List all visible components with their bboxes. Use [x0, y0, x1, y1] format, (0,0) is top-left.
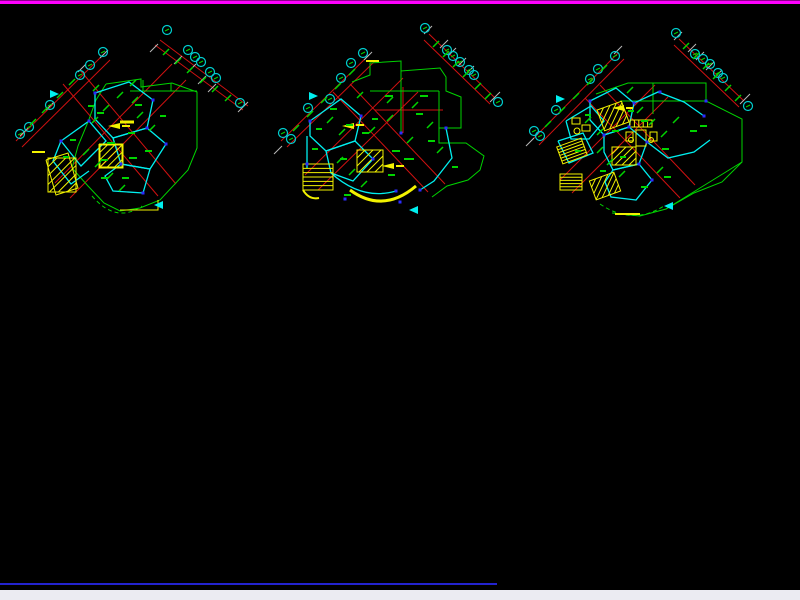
- leader-line: [150, 44, 158, 52]
- node-dot: [120, 163, 123, 166]
- dimension-tick: [361, 181, 367, 187]
- text-mark: [416, 113, 423, 115]
- node-dot: [603, 134, 606, 137]
- furniture-circle: [574, 128, 580, 134]
- node-dot: [309, 120, 312, 123]
- grid-bubble-glyph: [472, 74, 476, 76]
- text-mark: [340, 158, 347, 160]
- dimension-tick: [349, 69, 355, 75]
- grid-bubble-glyph: [423, 27, 427, 29]
- hatch-line: [375, 164, 383, 172]
- dimension-tick: [387, 97, 393, 103]
- text-mark: [129, 157, 137, 159]
- hatch-line: [611, 109, 629, 127]
- grid-bubble-glyph: [746, 105, 750, 107]
- node-dot: [705, 100, 708, 103]
- node-dot: [589, 100, 592, 103]
- node-dot: [399, 201, 402, 204]
- dimension-tick: [103, 105, 109, 111]
- text-mark: [620, 156, 626, 158]
- furniture-rect: [582, 125, 590, 131]
- wall-line: [647, 140, 710, 158]
- text-mark: [641, 186, 648, 188]
- node-dot: [152, 99, 155, 102]
- axis-dimension-line: [679, 39, 744, 101]
- hatch-line: [612, 147, 619, 154]
- balcony-arc: [303, 190, 319, 198]
- dimension-tick: [545, 121, 551, 127]
- grid-bubble-glyph: [289, 138, 293, 140]
- section-arrow-icon: [409, 206, 418, 214]
- dimension-tick: [627, 87, 633, 93]
- text-mark: [312, 148, 318, 150]
- dimension-tick: [619, 171, 625, 177]
- node-dot: [142, 192, 145, 195]
- text-mark: [135, 104, 142, 106]
- node-dot: [306, 163, 309, 166]
- text-mark-yellow: [122, 125, 130, 127]
- node-dot: [703, 115, 706, 118]
- axis-dimension-line: [572, 97, 668, 193]
- node-dot: [628, 126, 631, 129]
- hatch-block: [357, 150, 383, 172]
- node-dot: [646, 141, 649, 144]
- dimension-tick: [137, 112, 143, 118]
- text-mark: [404, 158, 414, 160]
- grid-bubble-glyph: [193, 56, 197, 58]
- grid-bubble-glyph: [165, 29, 169, 31]
- text-mark: [88, 105, 94, 107]
- hatch-line: [620, 115, 629, 124]
- grid-bubble-glyph: [721, 77, 725, 79]
- grid-bubble-glyph: [596, 68, 600, 70]
- dimension-tick: [327, 117, 333, 123]
- dimension-tick: [407, 137, 413, 143]
- hatch-block: [48, 158, 76, 192]
- leader-line: [274, 146, 282, 154]
- axis-dimension-line: [424, 40, 490, 104]
- grid-bubble-glyph: [306, 107, 310, 109]
- text-mark: [362, 132, 369, 134]
- dimension-tick: [637, 107, 643, 113]
- hatch-line: [100, 145, 115, 160]
- furniture-rect: [572, 118, 580, 124]
- text-mark-yellow: [356, 124, 364, 126]
- node-dot: [146, 127, 149, 130]
- dimension-tick: [117, 92, 123, 98]
- grid-bubble-glyph: [339, 77, 343, 79]
- section-arrow-icon: [309, 92, 318, 100]
- node-dot: [638, 163, 641, 166]
- text-mark: [145, 150, 152, 152]
- node-dot: [344, 198, 347, 201]
- node-dot: [88, 120, 91, 123]
- text-mark: [575, 150, 581, 152]
- grid-bubble-glyph: [361, 52, 365, 54]
- dimension-tick: [339, 129, 345, 135]
- node-dot: [633, 102, 636, 105]
- drawing-canvas[interactable]: [0, 0, 800, 600]
- grid-bubble-glyph: [701, 58, 705, 60]
- node-dot: [165, 143, 168, 146]
- direction-arrow-icon: [382, 163, 394, 169]
- text-mark: [690, 130, 697, 132]
- text-mark: [385, 95, 393, 97]
- text-mark: [641, 120, 648, 122]
- dimension-tick: [335, 83, 341, 89]
- node-dot: [400, 132, 403, 135]
- text-mark: [107, 142, 115, 144]
- dimension-tick: [119, 185, 125, 191]
- grid-bubble-glyph: [238, 102, 242, 104]
- floor-plan-2[interactable]: [274, 24, 503, 215]
- dimension-tick: [83, 149, 89, 155]
- hatch-outline: [589, 172, 620, 200]
- text-mark-yellow: [626, 107, 633, 109]
- text-mark: [662, 148, 669, 150]
- dimension-tick: [437, 147, 443, 153]
- hatch-line: [612, 147, 626, 161]
- text-mark: [452, 166, 458, 168]
- node-dot: [60, 140, 63, 143]
- grid-bubble-glyph: [349, 62, 353, 64]
- dimension-tick: [661, 131, 667, 137]
- axis-dimension-line: [70, 80, 186, 198]
- leader-line: [526, 138, 534, 146]
- hatch-block: [557, 138, 588, 164]
- bottom-blue-line: [0, 583, 497, 585]
- text-mark: [346, 124, 353, 126]
- cad-viewport: [0, 0, 800, 600]
- grid-bubble-glyph: [496, 101, 500, 103]
- hatch-block: [589, 172, 620, 200]
- floor-plan-3[interactable]: [526, 29, 753, 217]
- building-outline: [666, 162, 742, 209]
- text-mark: [700, 125, 707, 127]
- text-mark: [160, 115, 166, 117]
- text-mark: [612, 130, 619, 132]
- node-dot: [395, 190, 398, 193]
- hatch-line: [357, 150, 373, 166]
- dimension-tick: [149, 125, 155, 131]
- text-mark: [344, 194, 351, 196]
- dimension-tick: [349, 169, 355, 175]
- floor-plan-1[interactable]: [16, 26, 249, 214]
- grid-bubble-glyph: [328, 98, 332, 100]
- hatch-line: [629, 158, 636, 165]
- dimension-tick: [369, 127, 375, 133]
- text-mark: [628, 110, 634, 112]
- dimension-tick: [673, 117, 679, 123]
- building-outline: [352, 61, 484, 197]
- dimension-tick: [573, 93, 579, 99]
- node-dot: [651, 179, 654, 182]
- dimension-tick: [433, 41, 439, 47]
- building-outline: [72, 79, 197, 211]
- text-mark: [388, 174, 395, 176]
- grid-bubble-glyph: [199, 61, 203, 63]
- text-mark: [420, 95, 428, 97]
- grid-bubble-glyph: [214, 77, 218, 79]
- grid-bubble-glyph: [554, 109, 558, 111]
- text-mark: [372, 118, 378, 120]
- text-mark: [330, 108, 337, 110]
- hatch-block: [303, 164, 333, 190]
- status-bar: [0, 590, 800, 600]
- text-mark: [122, 177, 129, 179]
- axis-dimension-line: [160, 40, 248, 106]
- axis-dimension-line: [16, 54, 104, 141]
- grid-bubble-glyph: [186, 49, 190, 51]
- wall-line: [420, 128, 452, 190]
- node-dot: [94, 92, 97, 95]
- text-mark: [316, 128, 322, 130]
- dimension-tick: [485, 93, 491, 99]
- text-mark: [101, 159, 108, 161]
- dimension-tick: [657, 167, 663, 173]
- text-mark: [428, 140, 435, 142]
- grid-bubble-glyph: [281, 132, 285, 134]
- hatch-line: [589, 177, 606, 194]
- axis-dimension-line: [22, 60, 110, 147]
- node-dot: [419, 189, 422, 192]
- text-mark-yellow: [396, 165, 404, 167]
- hatch-line: [367, 156, 383, 172]
- dimension-tick: [597, 147, 603, 153]
- text-mark: [585, 114, 591, 116]
- hatch-line: [67, 183, 76, 192]
- grid-bubble-glyph: [88, 64, 92, 66]
- grid-bubble-glyph: [538, 135, 542, 137]
- dimension-tick: [427, 122, 433, 128]
- section-arrow-icon: [556, 95, 565, 103]
- node-dot: [372, 158, 375, 161]
- node-dot: [659, 91, 662, 94]
- grid-bubble-glyph: [101, 51, 105, 53]
- text-mark: [63, 156, 69, 158]
- direction-arrow-icon: [108, 123, 120, 129]
- text-mark: [70, 139, 76, 141]
- dimension-tick: [475, 83, 481, 89]
- grid-bubble-glyph: [208, 71, 212, 73]
- hatch-block: [100, 145, 122, 167]
- text-mark: [101, 177, 108, 179]
- node-dot: [445, 127, 448, 130]
- text-mark: [664, 176, 671, 178]
- node-dot: [360, 115, 363, 118]
- text-mark: [392, 150, 400, 152]
- dimension-tick: [412, 102, 418, 108]
- grid-bubble-glyph: [532, 130, 536, 132]
- text-mark: [600, 170, 606, 172]
- text-mark: [97, 112, 104, 114]
- text-mark: [128, 132, 135, 134]
- grid-bubble-glyph: [674, 32, 678, 34]
